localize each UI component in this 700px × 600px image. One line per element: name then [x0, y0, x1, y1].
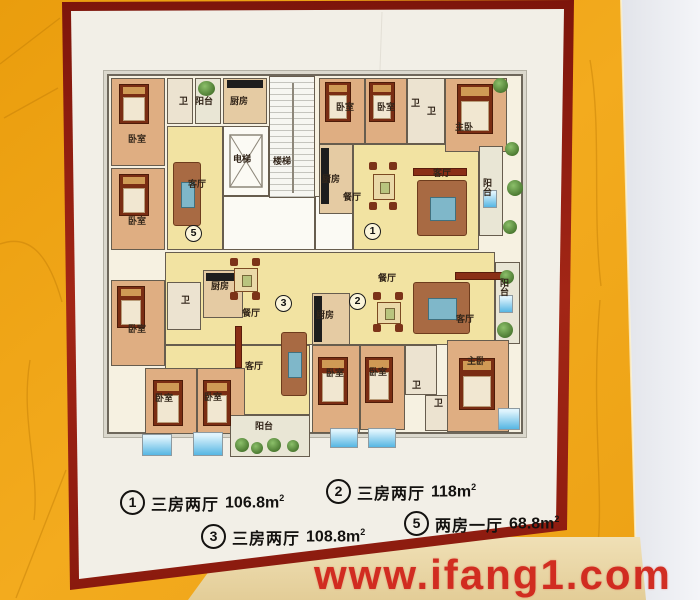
- corridor: [223, 196, 315, 250]
- stair-divider: [292, 83, 294, 193]
- ac-unit-icon: [142, 434, 172, 456]
- ac-unit-icon: [330, 428, 358, 448]
- sofa-icon: [413, 282, 470, 334]
- watermark-url: www.ifang1.com: [314, 551, 672, 599]
- unit-number-badge: 3: [275, 295, 292, 312]
- legend-unit-type: 三房两厅: [357, 480, 425, 504]
- legend-item-unit2: 2 三房两厅 118m2: [326, 479, 476, 504]
- plant-icon: [507, 180, 523, 196]
- room-label: 厨房: [230, 96, 248, 106]
- room-label: 卧室: [155, 393, 173, 403]
- sofa-icon: [417, 180, 467, 236]
- legend-item-unit3: 3 三房两厅 108.8m2: [201, 524, 365, 549]
- room-label: 卫: [412, 380, 421, 390]
- room-label: 卧室: [326, 368, 344, 378]
- legend-unit-type: 三房两厅: [232, 525, 300, 549]
- room-label: 餐厅: [242, 308, 260, 318]
- room-label: 客厅: [433, 168, 451, 178]
- room-stairs: [269, 76, 315, 198]
- room-label: 卫: [427, 106, 436, 116]
- bed-icon: [365, 357, 393, 403]
- room-label: 卧室: [204, 392, 222, 402]
- legend-item-unit1: 1 三房两厅 106.8m2: [120, 490, 284, 515]
- bed-icon: [119, 84, 149, 124]
- legend-unit-type: 三房两厅: [151, 491, 219, 515]
- dining-table-icon: [365, 162, 401, 210]
- kitchen-counter-icon: [227, 80, 263, 88]
- scene: 卧室 卧室 卫 阳台 厨房 客厅 5 电梯 楼梯 卧室 卧室 卫 卫 主卧 厨房…: [0, 0, 700, 600]
- room-label: 客厅: [456, 314, 474, 324]
- room-label: 卧室: [128, 216, 146, 226]
- ac-unit-icon: [498, 408, 520, 430]
- room-unit3-bath: [167, 282, 201, 330]
- unit-number-badge: 1: [364, 223, 381, 240]
- legend-unit-number: 3: [201, 524, 226, 549]
- room-label: 卫: [179, 96, 188, 106]
- unit-number-badge: 5: [185, 225, 202, 242]
- room-label: 阳台: [482, 178, 492, 196]
- room-label: 卫: [181, 295, 190, 305]
- room-label: 卧室: [128, 134, 146, 144]
- legend-unit-area: 68.8m2: [509, 514, 559, 533]
- legend-unit-type: 两房一厅: [435, 512, 503, 536]
- plant-icon: [235, 438, 249, 452]
- legend-unit-area: 118m2: [431, 482, 476, 501]
- bed-icon: [203, 380, 231, 426]
- room-label: 楼梯: [273, 156, 291, 166]
- bed-icon: [153, 380, 183, 426]
- plant-icon: [198, 81, 215, 96]
- bed-icon: [119, 174, 149, 216]
- tv-cabinet-icon: [235, 326, 242, 368]
- plant-icon: [503, 220, 517, 234]
- room-label: 厨房: [322, 174, 340, 184]
- dining-table-icon: [368, 292, 408, 332]
- room-label: 卧室: [377, 102, 395, 112]
- plant-icon: [251, 442, 263, 454]
- sofa-icon: [281, 332, 307, 396]
- plant-icon: [497, 322, 513, 338]
- legend-unit-number: 1: [120, 490, 145, 515]
- sofa-icon: [173, 162, 201, 226]
- bed-icon: [117, 286, 145, 328]
- unit-number-badge: 2: [349, 293, 366, 310]
- room-label: 阳台: [255, 421, 273, 431]
- room-unit1-baths: [407, 78, 445, 144]
- room-label: 卫: [434, 398, 443, 408]
- legend-unit-number: 5: [404, 511, 429, 536]
- legend-unit-area: 108.8m2: [306, 527, 365, 546]
- room-label: 厨房: [211, 281, 229, 291]
- room-label: 主卧: [467, 356, 485, 366]
- dining-table-icon: [225, 258, 265, 300]
- tv-cabinet-icon: [455, 272, 503, 280]
- plant-icon: [493, 78, 508, 93]
- balcony-water-icon: [499, 295, 513, 313]
- legend-unit-area: 106.8m2: [225, 493, 284, 512]
- room-label: 电梯: [233, 154, 251, 164]
- room-label: 卧室: [336, 102, 354, 112]
- room-label: 主卧: [455, 122, 473, 132]
- floor-plan: 卧室 卧室 卫 阳台 厨房 客厅 5 电梯 楼梯 卧室 卧室 卫 卫 主卧 厨房…: [103, 70, 527, 470]
- plant-icon: [505, 142, 519, 156]
- plant-icon: [267, 438, 281, 452]
- legend-unit-number: 2: [326, 479, 351, 504]
- room-label: 卫: [411, 98, 420, 108]
- ac-unit-icon: [368, 428, 396, 448]
- room-label: 餐厅: [343, 192, 361, 202]
- room-label: 客厅: [245, 361, 263, 371]
- room-label: 卧室: [128, 324, 146, 334]
- bed-icon: [318, 357, 348, 405]
- room-label: 卧室: [369, 367, 387, 377]
- plant-icon: [287, 440, 299, 452]
- legend-item-unit5: 5 两房一厅 68.8m2: [404, 511, 559, 536]
- room-label: 客厅: [188, 179, 206, 189]
- ac-unit-icon: [193, 432, 223, 456]
- room-label: 厨房: [316, 310, 334, 320]
- room-label: 阳台: [195, 96, 213, 106]
- room-label: 阳台: [499, 278, 509, 296]
- room-label: 餐厅: [378, 273, 396, 283]
